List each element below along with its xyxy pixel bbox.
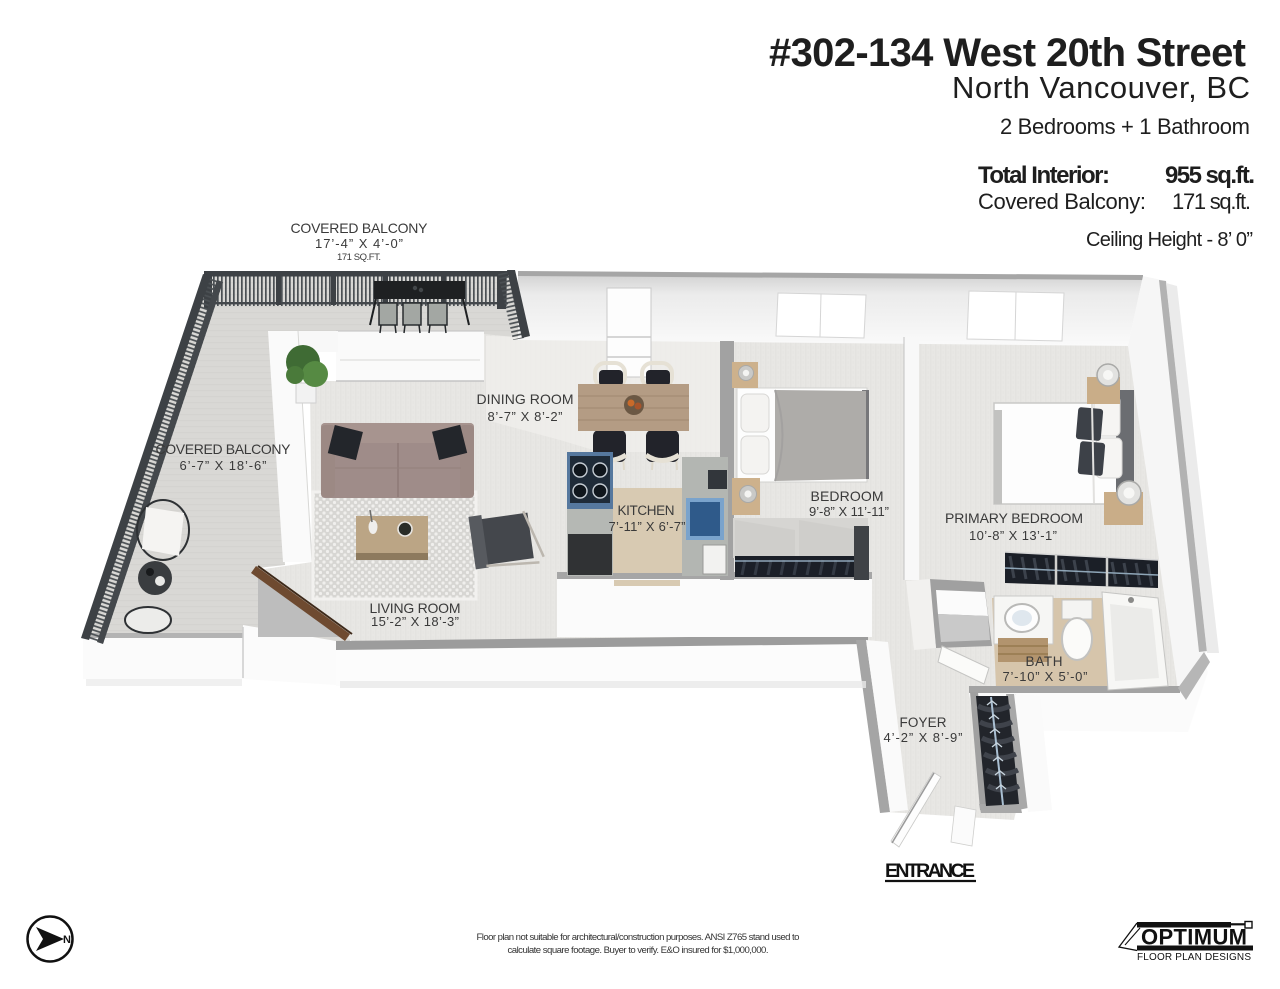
svg-text:#302-134 West 20th Street: #302-134 West 20th Street: [769, 31, 1246, 75]
svg-text:9’-8” X 11’-11”: 9’-8” X 11’-11”: [809, 504, 889, 519]
svg-text:17’-4” X 4’-0”: 17’-4” X 4’-0”: [315, 236, 403, 251]
svg-text:calculate square footage. Buye: calculate square footage. Buyer to verif…: [508, 945, 769, 956]
svg-text:6’-7” X 18’-6”: 6’-7” X 18’-6”: [180, 458, 267, 473]
svg-text:Total Interior:: Total Interior:: [978, 162, 1110, 189]
svg-text:COVERED BALCONY: COVERED BALCONY: [156, 441, 292, 457]
svg-text:PRIMARY BEDROOM: PRIMARY BEDROOM: [945, 510, 1083, 526]
svg-text:171 sq.ft.: 171 sq.ft.: [1172, 189, 1251, 214]
svg-text:BATH: BATH: [1026, 654, 1063, 669]
svg-text:BEDROOM: BEDROOM: [811, 488, 884, 504]
svg-text:171 SQ.FT.: 171 SQ.FT.: [337, 252, 381, 263]
svg-text:Covered Balcony:: Covered Balcony:: [978, 189, 1146, 214]
svg-text:2 Bedrooms + 1 Bathroom: 2 Bedrooms + 1 Bathroom: [1000, 114, 1250, 139]
svg-text:North Vancouver, BC: North Vancouver, BC: [952, 70, 1250, 105]
svg-text:FLOOR PLAN DESIGNS: FLOOR PLAN DESIGNS: [1137, 952, 1251, 963]
svg-text:7’-11” X 6’-7”: 7’-11” X 6’-7”: [609, 519, 686, 534]
svg-text:DINING ROOM: DINING ROOM: [477, 391, 574, 407]
svg-text:4’-2” X 8’-9”: 4’-2” X 8’-9”: [884, 730, 963, 745]
svg-text:Ceiling Height - 8’ 0”: Ceiling Height - 8’ 0”: [1086, 229, 1253, 251]
svg-text:955 sq.ft.: 955 sq.ft.: [1165, 162, 1255, 189]
svg-text:8’-7” X 8’-2”: 8’-7” X 8’-2”: [488, 409, 563, 424]
svg-text:7’-10” X 5’-0”: 7’-10” X 5’-0”: [1003, 669, 1088, 684]
svg-text:10’-8” X 13’-1”: 10’-8” X 13’-1”: [969, 528, 1057, 543]
svg-text:KITCHEN: KITCHEN: [618, 503, 675, 518]
svg-text:OPTIMUM: OPTIMUM: [1141, 925, 1247, 950]
svg-text:COVERED BALCONY: COVERED BALCONY: [291, 220, 429, 236]
svg-text:Floor plan not suitable for ar: Floor plan not suitable for architectura…: [477, 932, 800, 943]
svg-text:ENTRANCE: ENTRANCE: [885, 860, 975, 882]
svg-text:N: N: [63, 934, 71, 946]
svg-text:15’-2” X 18’-3”: 15’-2” X 18’-3”: [371, 614, 459, 629]
svg-text:FOYER: FOYER: [900, 715, 947, 730]
